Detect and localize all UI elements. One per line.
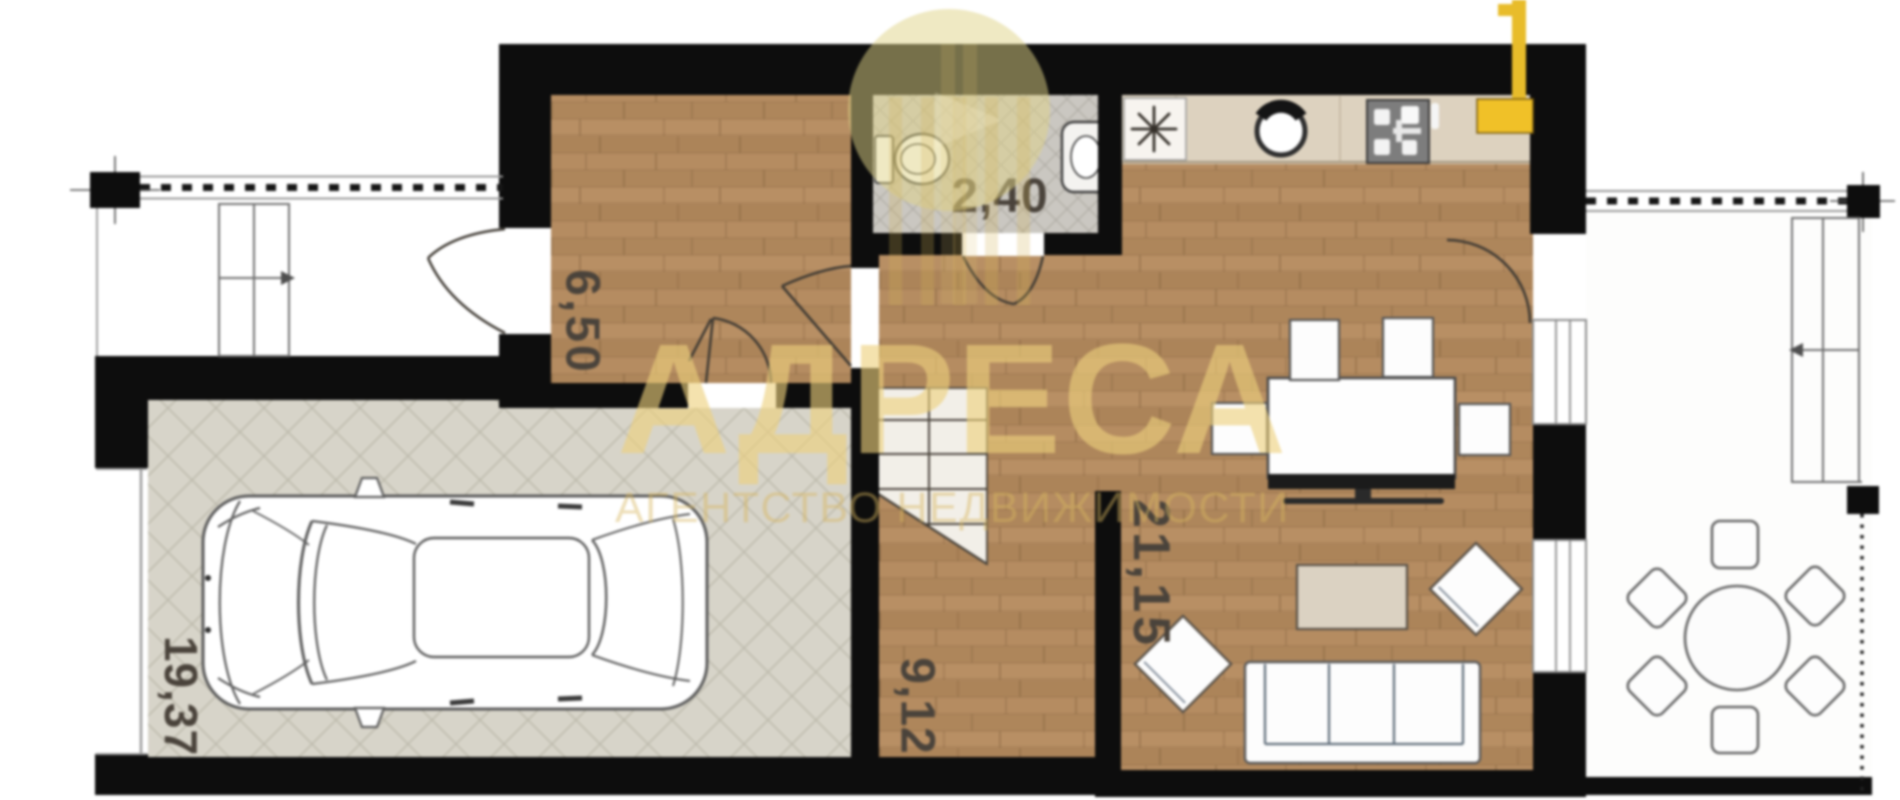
svg-text:19,37: 19,37 [155, 636, 207, 756]
svg-text:6,50: 6,50 [556, 269, 609, 374]
svg-text:9,12: 9,12 [891, 657, 944, 754]
svg-text:АДРЕСА: АДРЕСА [617, 312, 1288, 487]
svg-text:АГЕНТСТВО НЕДВИЖИМОСТИ: АГЕНТСТВО НЕДВИЖИМОСТИ [615, 484, 1290, 532]
